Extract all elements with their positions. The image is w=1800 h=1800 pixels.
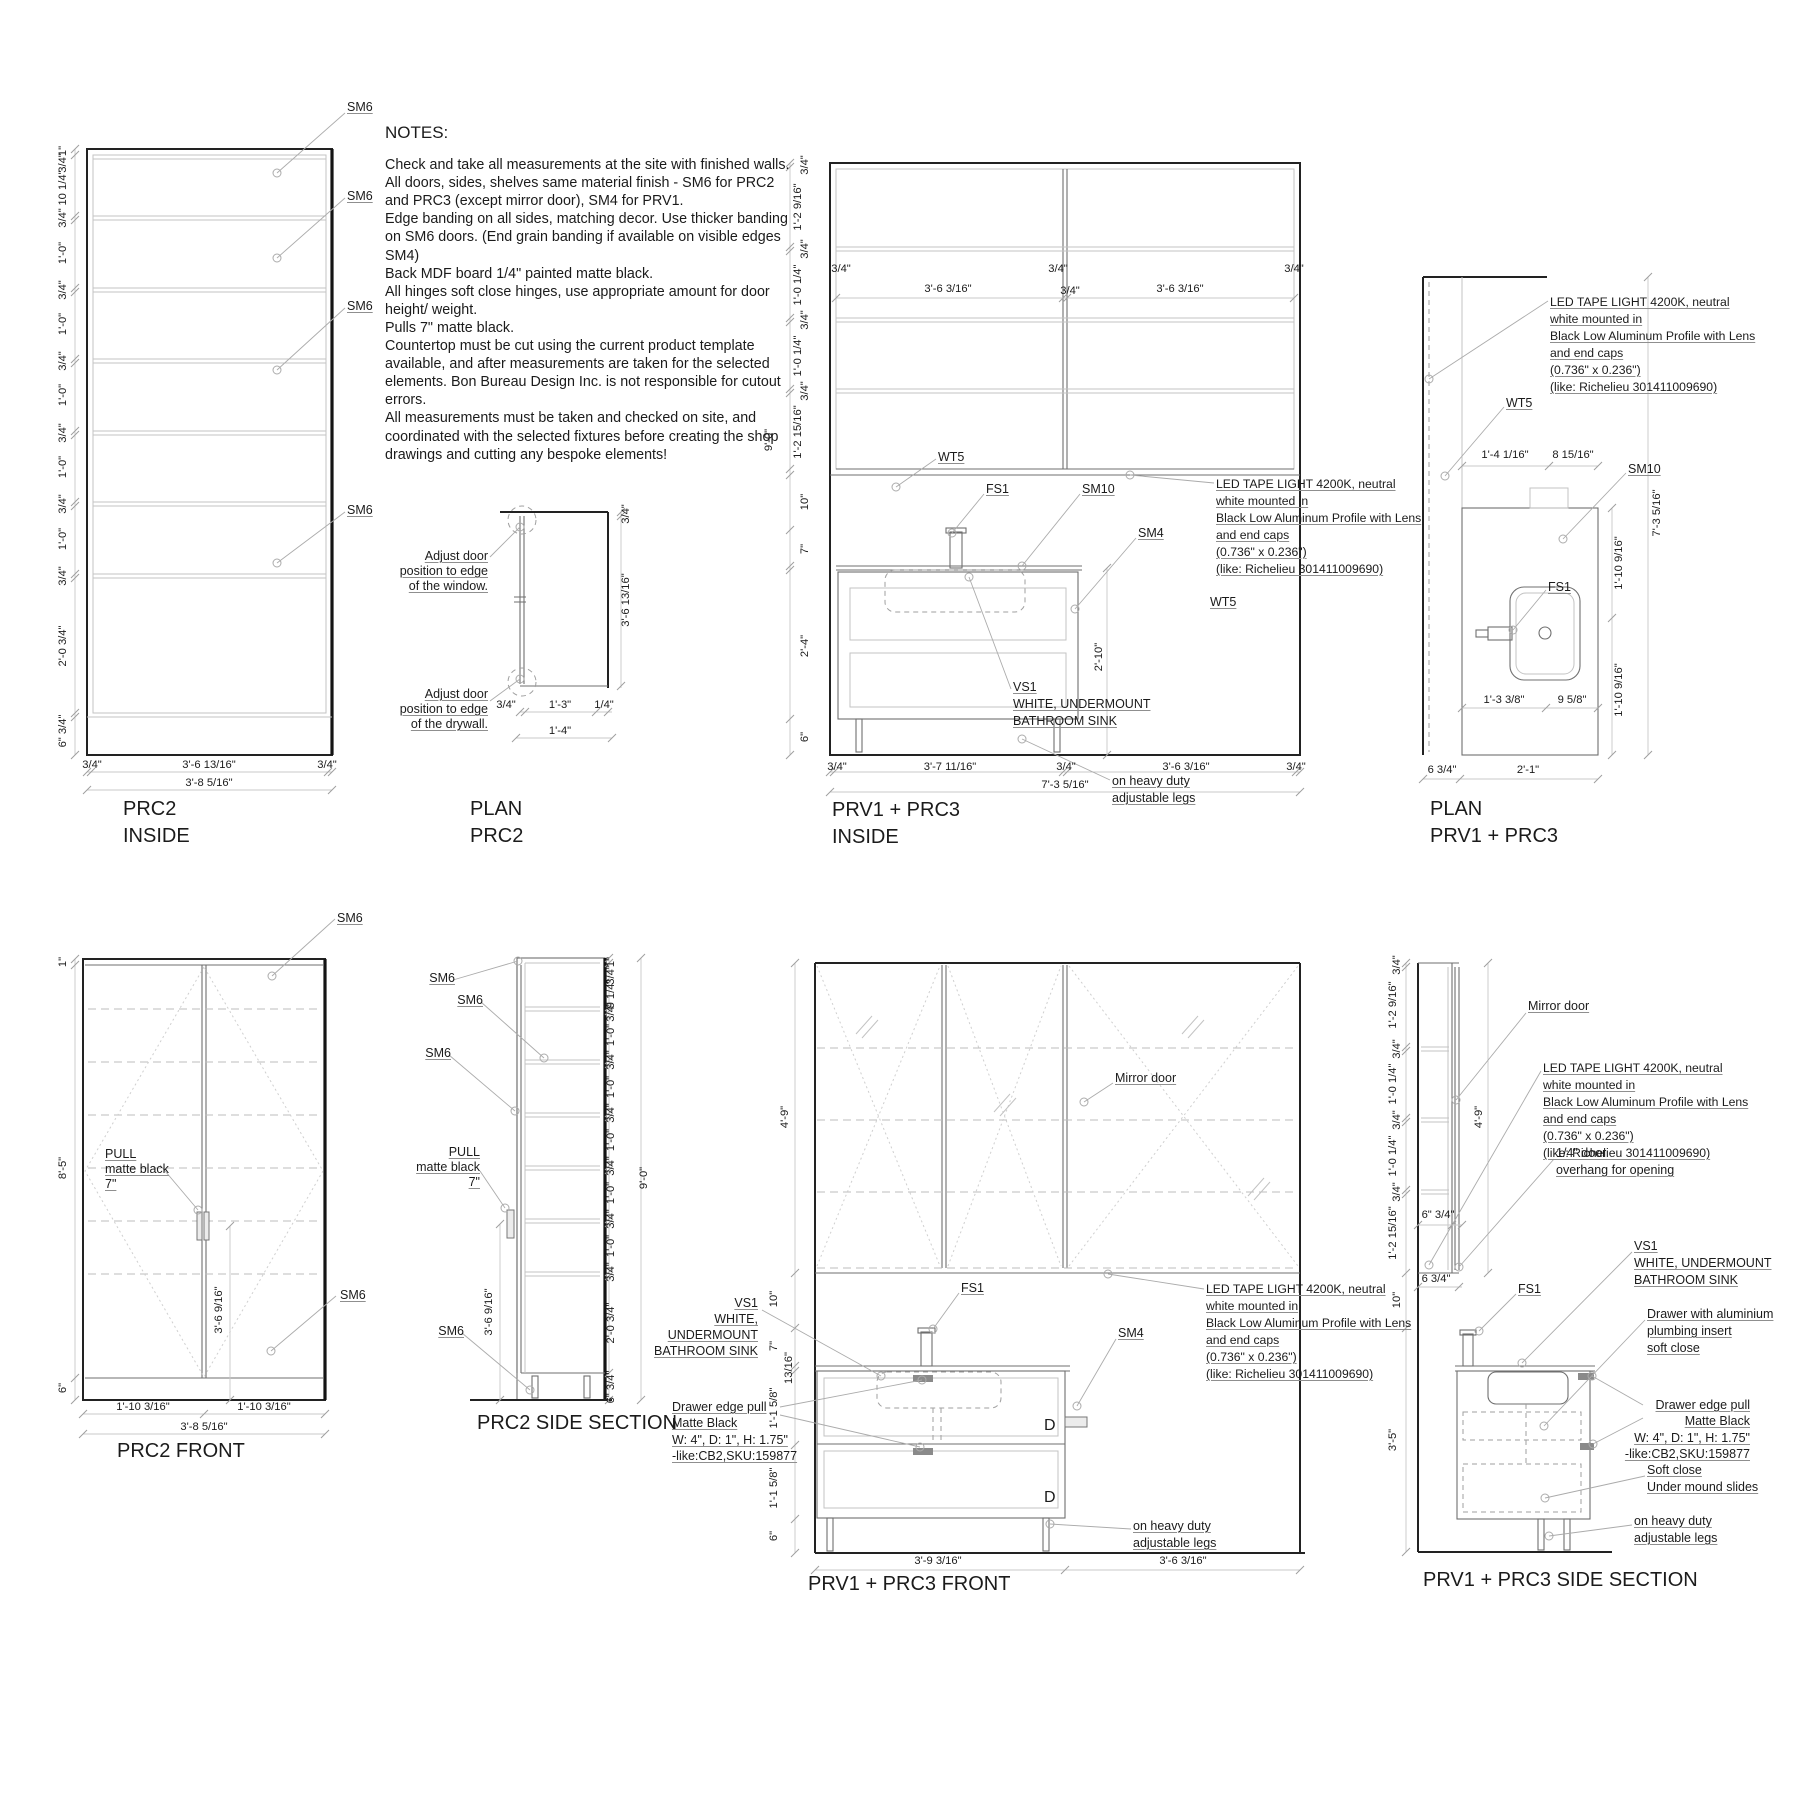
dim-label: 1'-1 5/8" [769, 1388, 781, 1429]
dim-label: 1'-0" [58, 456, 70, 478]
door-overhang-note-line: overhang for opening [1556, 1164, 1674, 1177]
dim-label: 1'-0" [606, 1024, 618, 1046]
sm10-tag: SM10 [1628, 463, 1661, 476]
notes-body-line: Countertop must be cut using the current… [385, 339, 755, 354]
dim-label: 3/4" [1392, 1110, 1404, 1130]
led-tape-light-note-line: and end caps [1550, 347, 1623, 360]
pull-note-line: PULL [105, 1148, 136, 1161]
view-title: PLAN [470, 799, 522, 820]
view-title: PLAN [1430, 799, 1482, 820]
led-tape-light-note-line: Black Low Aluminum Profile with Lens [1216, 512, 1421, 525]
dim-label: 3/4" [58, 494, 70, 514]
notes-body-line: SM4) [385, 249, 419, 264]
led-tape-light-note-line: LED TAPE LIGHT 4200K, neutral [1206, 1283, 1386, 1296]
dim-label: 3/4" [1392, 1039, 1404, 1059]
dim-label: 6" 3/4" [1422, 1210, 1455, 1222]
dim-label: 3'-6 3/16" [1159, 1556, 1206, 1568]
vs1-note-line: BATHROOM SINK [1013, 715, 1117, 728]
dim-label: 1'-0 1/4" [1388, 1064, 1400, 1105]
sm10-tag: SM10 [1082, 483, 1115, 496]
adjust-door-note-line: Adjust door [425, 688, 488, 701]
dim-label: 2'-0 3/4" [606, 1303, 618, 1344]
dim-label: 7'-3 5/16" [1041, 780, 1088, 792]
notes-body-line: drawings and cutting any bespoke element… [385, 448, 667, 463]
view-title: PRV1 + PRC3 [1430, 826, 1558, 847]
dim-label: 1'-0" [606, 1182, 618, 1204]
dim-label: 3/4" [58, 423, 70, 443]
led-tape-light-note-line: (0.736" x 0.236") [1206, 1351, 1297, 1364]
drawer-edge-pull-note-line: Drawer edge pull [672, 1401, 767, 1414]
led-tape-light-note-line: LED TAPE LIGHT 4200K, neutral [1550, 296, 1730, 309]
view-title: INSIDE [123, 826, 190, 847]
dim-label: 3/4" [1060, 286, 1080, 298]
dim-label: 4'-9" [1474, 1106, 1486, 1128]
dim-label: 1'-3 3/8" [1484, 695, 1525, 707]
sm6-tag: SM6 [347, 300, 373, 313]
fs1-tag: FS1 [1518, 1283, 1541, 1296]
dim-label: 3/4" [1284, 264, 1304, 276]
sm6-tag: SM6 [457, 994, 483, 1007]
dim-label: 3/4" [496, 700, 516, 712]
drawer-edge-pull-note-line: W: 4", D: 1", H: 1.75" [1634, 1432, 1750, 1445]
led-tape-light-note-line: and end caps [1216, 529, 1289, 542]
dim-label: 6 3/4" [1428, 765, 1457, 777]
dim-label: 1'-4 1/16" [1481, 450, 1528, 462]
pull-note-line: matte black [105, 1163, 169, 1176]
fs1-tag: FS1 [1548, 581, 1571, 594]
pull-note-line: PULL [449, 1146, 480, 1159]
dim-label: 9 5/8" [1558, 695, 1587, 707]
dim-label: 7'-3 5/16" [1652, 489, 1664, 536]
dim-label: 1'-2 9/16" [1388, 981, 1400, 1028]
dim-label: 3/4" [317, 760, 337, 772]
drawer-edge-pull-note-line: Matte Black [672, 1417, 737, 1430]
sm6-tag: SM6 [337, 912, 363, 925]
dim-label: 1'-0 1/4" [793, 336, 805, 377]
vs1-note-line: VS1 [1634, 1240, 1658, 1253]
led-tape-light-note-line: and end caps [1543, 1113, 1616, 1126]
drawer-edge-pull-note-line: -like:CB2,SKU:159877 [672, 1450, 797, 1463]
sm6-tag: SM6 [347, 504, 373, 517]
adjustable-legs-note-line: on heavy duty [1112, 775, 1190, 788]
dim-label: 3/4" [827, 762, 847, 774]
dim-label: 3/4" [800, 239, 812, 259]
led-tape-light-note-line: Black Low Aluminum Profile with Lens [1206, 1317, 1411, 1330]
led-tape-light-note-line: (0.736" x 0.236") [1543, 1130, 1634, 1143]
vs1-note-line: WHITE, UNDERMOUNT [1013, 698, 1151, 711]
led-tape-light-note-line: white mounted in [1543, 1079, 1635, 1092]
view-title: INSIDE [832, 827, 899, 848]
dim-label: 3'-8 5/16" [180, 1422, 227, 1434]
dim-label: 1'-1 5/8" [769, 1468, 781, 1509]
soft-close-note-line: Soft close [1647, 1464, 1702, 1477]
dim-label: 1'-10 9/16" [1614, 536, 1626, 589]
dim-label: 2'-0 3/4" [58, 626, 70, 667]
dim-label: 1'-0" [58, 313, 70, 335]
adjust-door-note-line: Adjust door [425, 550, 488, 563]
dim-label: 3/4" [606, 1209, 618, 1229]
dim-label: 3'-6 3/16" [1156, 284, 1203, 296]
notes-body-line: All doors, sides, shelves same material … [385, 176, 774, 191]
notes-body-line: available, and after measurements are ta… [385, 357, 770, 372]
view-title: PRV1 + PRC3 SIDE SECTION [1423, 1570, 1698, 1591]
dim-label: 10 1/4" [58, 170, 70, 205]
dim-label: 3'-6 3/16" [924, 284, 971, 296]
drawer-edge-pull-note-line: -like:CB2,SKU:159877 [1625, 1448, 1750, 1461]
dim-label: 3/4" [621, 504, 633, 524]
dim-label: 3'-5" [1388, 1429, 1400, 1451]
drawer-letter: D [1044, 1418, 1056, 1435]
dim-label: 1'-10 3/16" [116, 1402, 169, 1414]
adjustable-legs-note-line: on heavy duty [1133, 1520, 1211, 1533]
led-tape-light-note-line: (like: Richelieu 301411009690) [1206, 1368, 1373, 1381]
led-tape-light-note-line: (like: Richelieu 301411009690) [1216, 563, 1383, 576]
dim-label: 1'-0" [58, 242, 70, 264]
pull-note-line: 7" [469, 1176, 480, 1189]
dim-label: 3'-8 5/16" [185, 778, 232, 790]
dim-label: 3'-9 3/16" [914, 1556, 961, 1568]
fs1-tag: FS1 [986, 483, 1009, 496]
dim-label: 3/4" [58, 566, 70, 586]
dim-label: 9'-0" [639, 1167, 651, 1189]
notes-body-line: on SM6 doors. (End grain banding if avai… [385, 230, 781, 245]
led-tape-light-note-line: (0.736" x 0.236") [1550, 364, 1641, 377]
drawer-insert-note-line: Drawer with aluminium [1647, 1308, 1773, 1321]
vs1-note-line: BATHROOM SINK [654, 1345, 758, 1358]
dim-label: 6" 3/4" [606, 1371, 618, 1404]
adjustable-legs-note-line: adjustable legs [1634, 1532, 1717, 1545]
dim-label: 1'-0" [606, 1235, 618, 1257]
dim-label: 6 3/4" [1422, 1274, 1451, 1286]
led-tape-light-note-line: white mounted in [1550, 313, 1642, 326]
dim-label: 8 15/16" [1552, 450, 1593, 462]
drawer-insert-note-line: soft close [1647, 1342, 1700, 1355]
dim-label: 3/4" [606, 1103, 618, 1123]
view-title: PRV1 + PRC3 [832, 800, 960, 821]
pull-note-line: matte black [416, 1161, 480, 1174]
dim-label: 4'-9" [780, 1106, 792, 1128]
dim-label: 3/4" [1286, 762, 1306, 774]
wt5-tag: WT5 [938, 451, 964, 464]
shop-drawing-sheet: NOTES: 1"3/4"10 1/4"3/4"1'-0"3/4"1'-0"3/… [0, 0, 1800, 1800]
pull-note-line: 7" [105, 1178, 116, 1191]
notes-body-line: All measurements must be taken and check… [385, 411, 756, 426]
dim-label: 3'-6 9/16" [214, 1286, 226, 1333]
drawer-insert-note-line: plumbing insert [1647, 1325, 1732, 1338]
adjustable-legs-note-line: adjustable legs [1133, 1537, 1216, 1550]
drawer-letter: D [1044, 1490, 1056, 1507]
mirror-door-tag: Mirror door [1528, 1000, 1589, 1013]
dim-label: 3'-6 3/16" [1162, 762, 1209, 774]
soft-close-note-line: Under mound slides [1647, 1481, 1758, 1494]
adjust-door-note-line: position to edge [400, 703, 488, 716]
dim-label: 1'-10 9/16" [1614, 663, 1626, 716]
dim-label: 3/4" [58, 351, 70, 371]
dim-label: 10" [769, 1291, 781, 1307]
dim-label: 3/4" [82, 760, 102, 772]
dim-label: 7" [769, 1341, 781, 1351]
wt5-tag: WT5 [1506, 397, 1532, 410]
led-tape-light-note-line: LED TAPE LIGHT 4200K, neutral [1543, 1062, 1723, 1075]
sm6-tag: SM6 [347, 101, 373, 114]
dim-label: 3/4" [800, 310, 812, 330]
dim-label: 2'-1" [1517, 765, 1539, 777]
dim-label: 1'-10 3/16" [237, 1402, 290, 1414]
dim-label: 3/4" [1392, 955, 1404, 975]
vs1-note-line: VS1 [734, 1297, 758, 1310]
dim-label: 1'-0 1/4" [793, 265, 805, 306]
mirror-door-tag: Mirror door [1115, 1072, 1176, 1085]
dim-label: 3/4" [831, 264, 851, 276]
dim-label: 13/16" [784, 1352, 796, 1384]
led-tape-light-note-line: and end caps [1206, 1334, 1279, 1347]
adjustable-legs-note-line: on heavy duty [1634, 1515, 1712, 1528]
notes-body-line: and PRC3 (except mirror door), SM4 for P… [385, 194, 684, 209]
sm4-tag: SM4 [1138, 527, 1164, 540]
notes-body-line: elements. Bon Bureau Design Inc. is not … [385, 375, 781, 390]
sm6-tag: SM6 [347, 190, 373, 203]
dim-label: 3'-6 9/16" [484, 1288, 496, 1335]
notes-body-line: Check and take all measurements at the s… [385, 158, 789, 173]
dim-label: 1'-0" [606, 1076, 618, 1098]
notes-body-line: height/ weight. [385, 303, 477, 318]
dim-label: 3/4" [606, 1002, 618, 1022]
sm6-tag: SM6 [429, 972, 455, 985]
dim-label: 3/4" [1048, 264, 1068, 276]
dim-label: 2'-4" [800, 635, 812, 657]
dim-label: 10" [1392, 1292, 1404, 1308]
adjust-door-note-line: of the drywall. [411, 718, 488, 731]
dim-label: 3/4" [606, 1156, 618, 1176]
view-title: PRC2 [470, 826, 523, 847]
notes-body-line: Edge banding on all sides, matching deco… [385, 212, 788, 227]
drawer-edge-pull-note-line: Matte Black [1685, 1415, 1750, 1428]
led-tape-light-note-line: Black Low Aluminum Profile with Lens [1550, 330, 1755, 343]
dim-label: 3'-6 13/16" [182, 760, 235, 772]
led-tape-light-note-line: white mounted in [1206, 1300, 1298, 1313]
notes-body-line: All hinges soft close hinges, use approp… [385, 285, 770, 300]
dim-label: 3/4" [800, 381, 812, 401]
view-title: PRV1 + PRC3 FRONT [808, 1574, 1010, 1595]
led-tape-light-note-line: (0.736" x 0.236") [1216, 546, 1307, 559]
sm6-tag: SM6 [340, 1289, 366, 1302]
dim-label: 3'-7 11/16" [924, 762, 977, 774]
dim-label: 1/4" [594, 700, 614, 712]
vs1-note-line: VS1 [1013, 681, 1037, 694]
dim-label: 1'-0 1/4" [1388, 1136, 1400, 1177]
notes-body-line: Back MDF board 1/4" painted matte black. [385, 267, 653, 282]
dim-label: 3/4" [58, 280, 70, 300]
notes-body-line: Pulls 7" matte black. [385, 321, 514, 336]
dim-label: 1'-2 15/16" [793, 405, 805, 458]
vs1-note-line: WHITE, [714, 1313, 758, 1326]
dim-label: 2'-10" [1094, 643, 1106, 672]
dim-label: 1'-4" [549, 726, 571, 738]
notes-title: NOTES: [385, 124, 448, 142]
dim-label: 7" [800, 544, 812, 554]
adjust-door-note-line: of the window. [409, 580, 488, 593]
annotation-text-layer: NOTES: 1"3/4"10 1/4"3/4"1'-0"3/4"1'-0"3/… [0, 0, 1800, 1800]
led-tape-light-note-line: (like: Richelieu 301411009690) [1543, 1147, 1710, 1160]
dim-label: 3/4" [1056, 762, 1076, 774]
dim-label: 10" [800, 494, 812, 510]
dim-label: 1'-0" [58, 384, 70, 406]
dim-label: 3/4" [606, 1262, 618, 1282]
notes-body-line: coordinated with the selected fixtures b… [385, 430, 778, 445]
sm6-tag: SM6 [438, 1325, 464, 1338]
led-tape-light-note-line: white mounted in [1216, 495, 1308, 508]
dim-label: 6" [769, 1531, 781, 1541]
vs1-note-line: UNDERMOUNT [668, 1329, 758, 1342]
dim-label: 1" [58, 957, 70, 967]
adjust-door-note-line: position to edge [400, 565, 488, 578]
fs1-tag: FS1 [961, 1282, 984, 1295]
dim-label: 1'-3" [549, 700, 571, 712]
dim-label: 6" 3/4" [58, 715, 70, 748]
sm6-tag: SM6 [425, 1047, 451, 1060]
dim-label: 1'-2 9/16" [793, 183, 805, 230]
led-tape-light-note-line: Black Low Aluminum Profile with Lens [1543, 1096, 1748, 1109]
adjustable-legs-note-line: adjustable legs [1112, 792, 1195, 805]
wt5-tag: WT5 [1210, 596, 1236, 609]
drawer-edge-pull-note-line: Drawer edge pull [1656, 1399, 1751, 1412]
sm4-tag: SM4 [1118, 1327, 1144, 1340]
dim-label: 6" [58, 1383, 70, 1393]
drawer-edge-pull-note-line: W: 4", D: 1", H: 1.75" [672, 1434, 788, 1447]
dim-label: 3'-6 13/16" [621, 573, 633, 626]
led-tape-light-note-line: LED TAPE LIGHT 4200K, neutral [1216, 478, 1396, 491]
dim-label: 8'-5" [58, 1157, 70, 1179]
dim-label: 3/4" [58, 208, 70, 228]
dim-label: 3/4" [800, 155, 812, 175]
notes-body-line: errors. [385, 393, 426, 408]
dim-label: 1'-0" [58, 528, 70, 550]
view-title: PRC2 [123, 799, 176, 820]
dim-label: 3/4" [606, 1050, 618, 1070]
view-title: PRC2 FRONT [117, 1441, 245, 1462]
dim-label: 1'-0" [606, 1129, 618, 1151]
dim-label: 3/4" [1392, 1182, 1404, 1202]
dim-label: 6" [800, 732, 812, 742]
dim-label: 1'-2 15/16" [1388, 1206, 1400, 1259]
led-tape-light-note-line: (like: Richelieu 301411009690) [1550, 381, 1717, 394]
vs1-note-line: WHITE, UNDERMOUNT [1634, 1257, 1772, 1270]
view-title: PRC2 SIDE SECTION [477, 1413, 677, 1434]
vs1-note-line: BATHROOM SINK [1634, 1274, 1738, 1287]
